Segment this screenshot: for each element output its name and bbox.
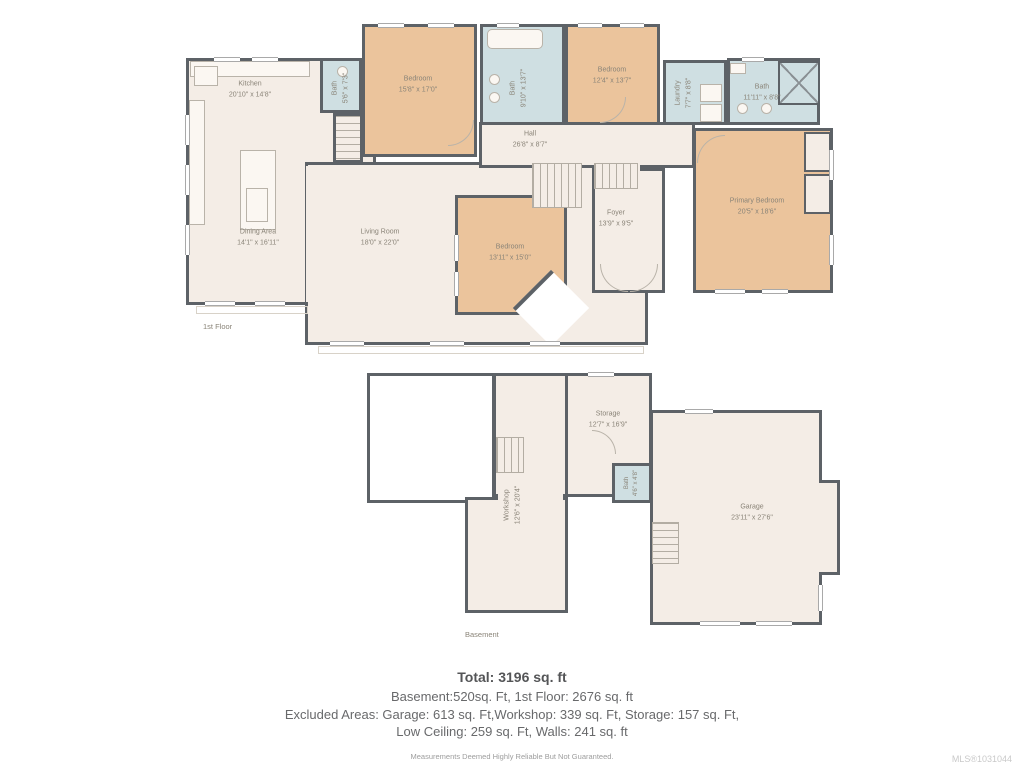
window [185, 115, 190, 145]
room-name: Bedroom [593, 66, 631, 77]
room-name: Primary Bedroom [730, 197, 784, 208]
basement-bath-label: Bath 4'6" x 4'8" [623, 470, 641, 496]
room-name: Kitchen [229, 80, 271, 91]
first-floor-label: 1st Floor [203, 322, 232, 331]
room-dims: 15'8" x 17'0" [399, 85, 437, 96]
bedroom1-label: Bedroom 15'8" x 17'0" [399, 75, 437, 96]
bedroom3-label: Bedroom 13'11" x 15'0" [489, 243, 531, 264]
bedroom2-label: Bedroom 12'4" x 13'7" [593, 66, 631, 87]
bath-main-label: Bath 9'10" x 13'7" [509, 69, 530, 107]
bath-main-sink2 [489, 74, 500, 85]
room-dims: 23'11" x 27'6" [731, 513, 773, 524]
foyer-label: Foyer 13'9" x 9'5" [599, 209, 634, 230]
window [214, 57, 240, 62]
room-name: Bedroom [489, 243, 531, 254]
window [252, 57, 278, 62]
stairs-upper-run [594, 163, 638, 189]
window [756, 621, 792, 626]
room-name: Bath [623, 470, 632, 496]
window [700, 621, 740, 626]
window [428, 23, 454, 28]
kitchen-island-sink [246, 188, 268, 222]
room-dims: 20'5" x 18'6" [730, 207, 784, 218]
window [185, 165, 190, 195]
floorplan-canvas: Kitchen 20'10" x 14'8" Bath 5'6" x 7'3" … [0, 0, 1024, 768]
window [497, 23, 519, 28]
open-area-patch [309, 300, 377, 308]
room-name: Garage [731, 503, 773, 514]
room-dims: 12'7" x 16'9" [589, 420, 627, 431]
room-dims: 20'10" x 14'8" [229, 90, 271, 101]
storage-label: Storage 12'7" x 16'9" [589, 410, 627, 431]
room-name: Bath [331, 73, 342, 104]
window [742, 57, 764, 62]
room-dims: 12'4" x 13'7" [593, 76, 631, 87]
room-name: Bedroom [399, 75, 437, 86]
bath-main-sink1 [489, 92, 500, 103]
room-name: Bath [509, 69, 520, 107]
window [205, 301, 235, 306]
window [829, 150, 834, 180]
porch-outline-living [318, 346, 644, 354]
window [330, 341, 364, 346]
workshop-label: Workshop 12'6" x 20'4" [503, 486, 524, 524]
window [430, 341, 464, 346]
mls-number: MLS®1031044 [952, 754, 1012, 764]
room-name: Foyer [599, 209, 634, 220]
room-name: Hall [513, 130, 548, 141]
room-dims: 13'11" x 15'0" [489, 253, 531, 264]
room-dims: 11'11" x 8'8" [743, 93, 780, 104]
window [829, 235, 834, 265]
garage-stairs [652, 522, 679, 564]
total-area: Total: 3196 sq. ft [0, 669, 1024, 685]
basement-stairs [496, 437, 524, 473]
garage-annex [819, 480, 840, 575]
room-dims: 5'6" x 7'3" [341, 73, 352, 104]
room-name: Bath [743, 83, 780, 94]
room-dims: 14'1" x 16'11" [237, 238, 279, 249]
disclaimer-text: Measurements Deemed Highly Reliable But … [0, 752, 1024, 761]
room-dims: 4'6" x 4'8" [632, 470, 641, 496]
primary-closet2 [804, 174, 831, 214]
bathtub [487, 29, 543, 49]
window [255, 301, 285, 306]
basement-unfinished-room [367, 373, 495, 503]
area-line-1: Basement:520sq. Ft, 1st Floor: 2676 sq. … [0, 688, 1024, 706]
dining-label: Dining Area 14'1" x 16'11" [237, 228, 279, 249]
window [185, 225, 190, 255]
area-line-3: Low Ceiling: 259 sq. Ft, Walls: 241 sq. … [0, 723, 1024, 741]
area-line-2: Excluded Areas: Garage: 613 sq. Ft,Works… [0, 706, 1024, 724]
basement-label: Basement [465, 630, 499, 639]
bath-right-toilet [730, 63, 746, 74]
room-dims: 9'10" x 13'7" [519, 69, 530, 107]
window [588, 372, 614, 377]
laundry-washer [700, 84, 722, 102]
stairs-main [532, 163, 582, 208]
window [818, 585, 823, 611]
window [454, 235, 459, 261]
room-dims: 26'8" x 8'7" [513, 140, 548, 151]
window [620, 23, 644, 28]
stairs-by-kitchen [333, 113, 363, 163]
laundry-dryer [700, 104, 722, 122]
shower-stall [778, 61, 820, 105]
garage-label: Garage 23'11" x 27'6" [731, 503, 773, 524]
bath-small-label: Bath 5'6" x 7'3" [331, 73, 352, 104]
room-dims: 7'7" x 8'8" [684, 78, 695, 109]
laundry-label: Laundry 7'7" x 8'8" [674, 78, 695, 109]
room-name: Laundry [674, 78, 685, 109]
primary-bedroom-label: Primary Bedroom 20'5" x 18'6" [730, 197, 784, 218]
primary-closet1 [804, 132, 831, 172]
bath-right-sink2 [761, 103, 772, 114]
window [378, 23, 404, 28]
room-dims: 12'6" x 20'4" [513, 486, 524, 524]
window [685, 409, 713, 414]
kitchen-counter-left [189, 100, 205, 225]
living-label: Living Room 18'0" x 22'0" [361, 228, 400, 249]
window [715, 289, 745, 294]
area-summary: Total: 3196 sq. ft Basement:520sq. Ft, 1… [0, 669, 1024, 761]
bath-right-label: Bath 11'11" x 8'8" [743, 83, 780, 104]
porch-outline-dining [196, 306, 308, 314]
bath-right-sink1 [737, 103, 748, 114]
room-dims: 13'9" x 9'5" [599, 219, 634, 230]
hall-area [479, 122, 695, 168]
window [530, 341, 560, 346]
room-name: Dining Area [237, 228, 279, 239]
kitchen-stove [194, 66, 218, 86]
workshop-upper [493, 373, 568, 497]
window [762, 289, 788, 294]
hall-label: Hall 26'8" x 8'7" [513, 130, 548, 151]
window [578, 23, 602, 28]
room-name: Living Room [361, 228, 400, 239]
window [454, 272, 459, 296]
room-name: Storage [589, 410, 627, 421]
room-dims: 18'0" x 22'0" [361, 238, 400, 249]
room-name: Workshop [503, 486, 514, 524]
kitchen-label: Kitchen 20'10" x 14'8" [229, 80, 271, 101]
